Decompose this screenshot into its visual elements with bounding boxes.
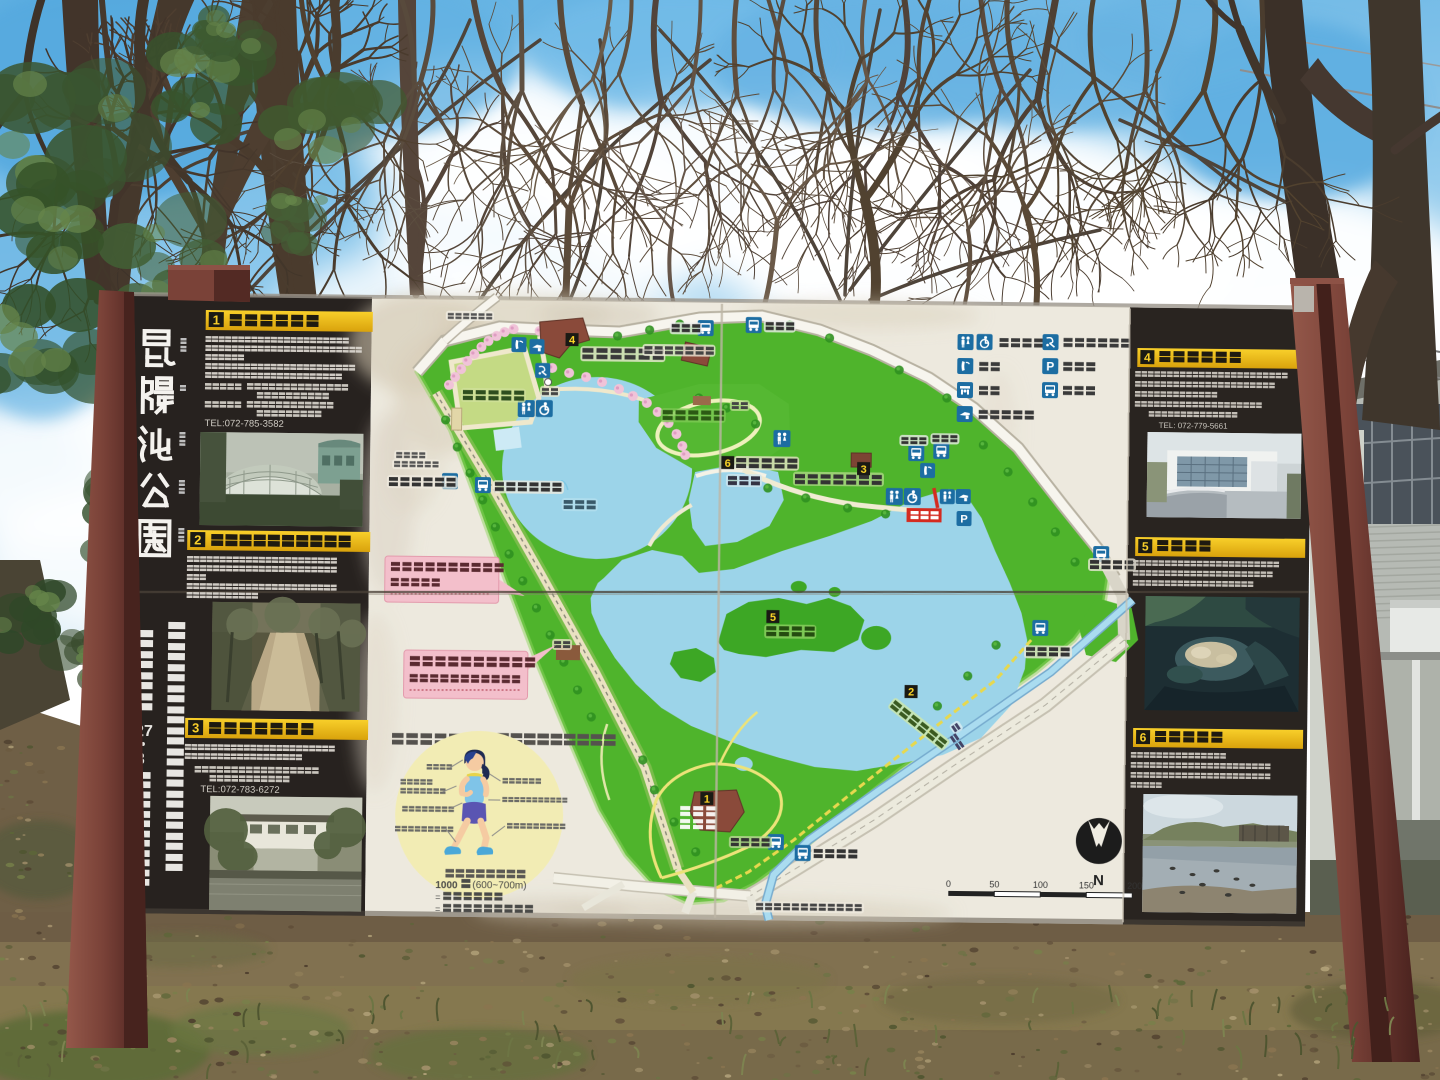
svg-text:4: 4 (569, 335, 576, 347)
svg-text:4: 4 (1144, 350, 1151, 364)
svg-text:TEL:072-783-6272: TEL:072-783-6272 (200, 784, 279, 796)
svg-text:=: = (435, 892, 440, 902)
svg-text:2: 2 (194, 532, 201, 547)
svg-text:100: 100 (1033, 880, 1048, 890)
svg-text:P: P (960, 514, 968, 526)
svg-text:(600~700m): (600~700m) (472, 880, 526, 892)
svg-text:150: 150 (1079, 880, 1094, 890)
svg-text:6: 6 (725, 458, 731, 470)
svg-text:2: 2 (908, 687, 914, 699)
svg-text:1000: 1000 (435, 880, 458, 891)
svg-text:=: = (435, 904, 440, 914)
svg-text:50: 50 (989, 879, 999, 889)
svg-text:0: 0 (946, 879, 951, 889)
svg-text:TEL: 072-779-5661: TEL: 072-779-5661 (1159, 421, 1229, 431)
svg-text:TEL:072-785-3582: TEL:072-785-3582 (205, 418, 284, 430)
svg-text:6: 6 (1140, 730, 1147, 744)
svg-text:3: 3 (860, 464, 866, 476)
svg-text:3: 3 (192, 720, 199, 735)
svg-text:P: P (1046, 360, 1054, 374)
svg-text:1: 1 (213, 312, 220, 327)
svg-text:1: 1 (704, 794, 710, 806)
svg-text:N: N (1093, 872, 1104, 889)
svg-text:5: 5 (770, 612, 776, 624)
svg-text:5: 5 (1142, 539, 1149, 553)
